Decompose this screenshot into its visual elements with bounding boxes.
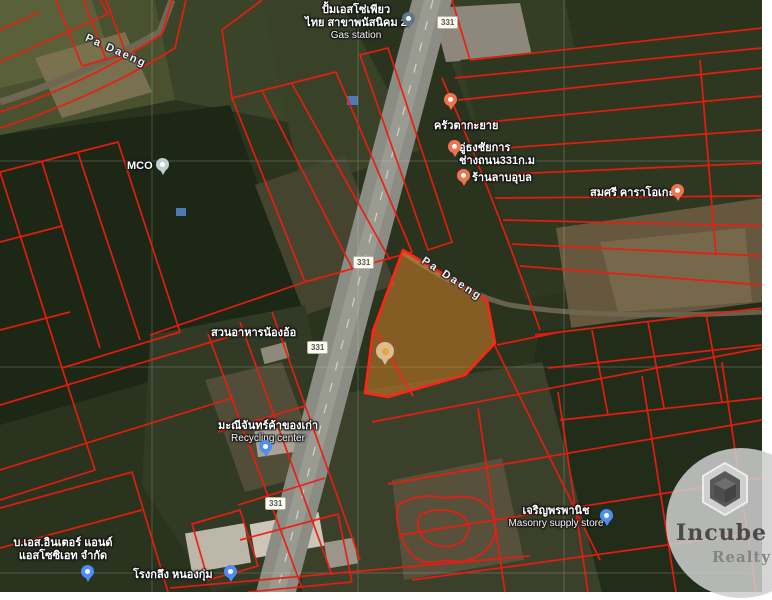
route-shield-331: 331 xyxy=(353,256,374,269)
place-icon xyxy=(160,162,165,167)
route-shield-331: 331 xyxy=(265,497,286,510)
watermark-brand-sub: Realty xyxy=(712,548,772,566)
wrench-icon xyxy=(452,144,457,149)
restaurant-icon xyxy=(461,173,466,178)
property-pin[interactable] xyxy=(376,342,394,360)
gas-station-pin[interactable] xyxy=(402,12,415,25)
property-marker-icon xyxy=(382,348,389,355)
place-label-restaurant-lab[interactable]: ร้านลาบอุบล xyxy=(472,172,532,185)
place-label-gas-station[interactable]: ปั้มเอสโซ่เพียว ไทย สาขาพนัสนิคม 2 Gas s… xyxy=(305,4,407,42)
place-label-restaurant-krua[interactable]: ครัวตากะยาย xyxy=(434,120,498,133)
place-label-s-inter-associate[interactable]: บ.เอส.อินเตอร์ แอนด์ แอสโซซิเอท จำกัด xyxy=(13,537,112,563)
place-label-lathe-shop[interactable]: โรงกลึง หนองกุ่ม xyxy=(133,569,213,582)
place-label-auto-shop[interactable]: อู่ธงชัยการ ช่างถนน331ก.ม xyxy=(459,142,535,168)
place-label-mco[interactable]: MCO xyxy=(127,160,153,173)
restaurant-icon xyxy=(448,97,453,102)
watermark-brand: Incube xyxy=(676,520,772,546)
recycling-center-pin[interactable] xyxy=(259,440,272,453)
mco-pin[interactable] xyxy=(156,158,169,171)
place-label-karaoke[interactable]: สมศรี คาราโอเกะ xyxy=(590,187,674,200)
masonry-store-pin[interactable] xyxy=(600,509,613,522)
gas-icon xyxy=(406,16,411,21)
store-icon xyxy=(263,444,268,449)
karaoke-icon xyxy=(675,188,680,193)
satellite-map[interactable]: 331 331 331 331 Pa Daeng Pa Daeng ปั้มเอ… xyxy=(0,0,762,592)
route-shield-331: 331 xyxy=(307,341,328,354)
place-label-restaurant-nong-or[interactable]: สวนอาหารน้องอ้อ xyxy=(211,327,296,340)
lathe-shop-pin[interactable] xyxy=(224,565,237,578)
incube-cube-icon xyxy=(700,462,750,516)
restaurant-pin[interactable] xyxy=(457,169,470,182)
shopping-bag-icon xyxy=(604,513,609,518)
store-icon xyxy=(85,569,90,574)
place-label-masonry-store[interactable]: เจริญพรพานิช Masonry supply store xyxy=(508,505,603,530)
auto-shop-pin[interactable] xyxy=(448,140,461,153)
store-icon xyxy=(228,569,233,574)
listing-map-image: 331 331 331 331 Pa Daeng Pa Daeng ปั้มเอ… xyxy=(0,0,772,600)
company-pin[interactable] xyxy=(81,565,94,578)
map-canvas xyxy=(0,0,762,592)
route-shield-331: 331 xyxy=(437,16,458,29)
karaoke-pin[interactable] xyxy=(671,184,684,197)
restaurant-pin[interactable] xyxy=(444,93,457,106)
